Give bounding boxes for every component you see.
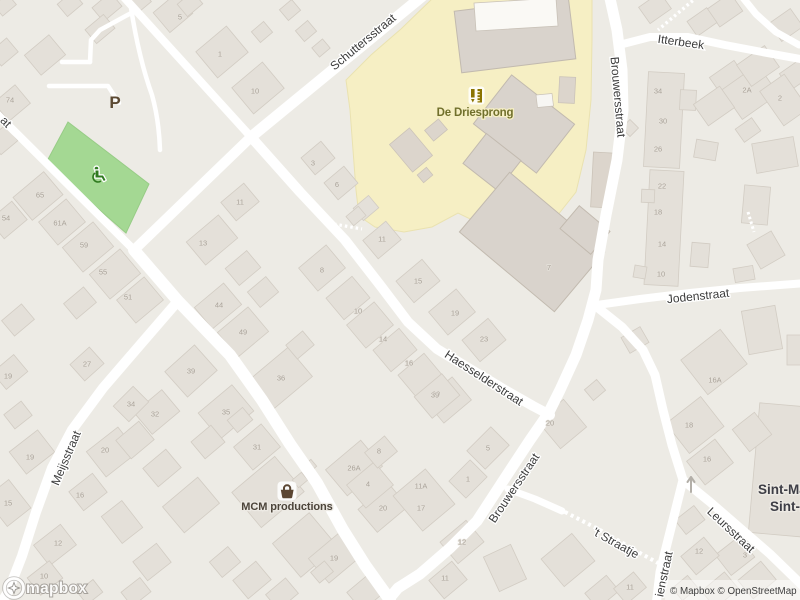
svg-text:MCM productions: MCM productions xyxy=(241,501,332,513)
svg-text:54: 54 xyxy=(2,214,10,223)
svg-text:3: 3 xyxy=(311,159,315,168)
svg-text:39: 39 xyxy=(187,367,195,376)
svg-text:10: 10 xyxy=(251,87,259,96)
svg-text:23: 23 xyxy=(480,335,488,344)
svg-text:16A: 16A xyxy=(708,376,721,385)
svg-text:39: 39 xyxy=(431,391,439,400)
svg-text:35: 35 xyxy=(222,408,230,417)
svg-text:12: 12 xyxy=(54,539,62,548)
svg-text:Sint-P: Sint-P xyxy=(770,499,800,514)
svg-text:7: 7 xyxy=(547,263,551,272)
svg-text:16: 16 xyxy=(405,359,413,368)
svg-text:8: 8 xyxy=(377,447,381,456)
svg-text:26: 26 xyxy=(654,145,662,154)
svg-text:32: 32 xyxy=(151,410,159,419)
svg-text:44: 44 xyxy=(215,301,223,310)
svg-text:14: 14 xyxy=(379,335,387,344)
svg-text:11: 11 xyxy=(378,235,386,244)
svg-text:12: 12 xyxy=(458,538,466,547)
svg-text:65: 65 xyxy=(36,191,44,200)
svg-text:De Driesprong: De Driesprong xyxy=(437,107,514,119)
svg-text:16: 16 xyxy=(703,455,711,464)
svg-text:19: 19 xyxy=(26,453,34,462)
svg-text:49: 49 xyxy=(239,328,247,337)
svg-text:51: 51 xyxy=(124,293,132,302)
svg-text:20: 20 xyxy=(379,504,387,513)
svg-text:26A: 26A xyxy=(347,464,360,473)
svg-text:30: 30 xyxy=(659,117,667,126)
svg-text:© Mapbox © OpenStreetMap: © Mapbox © OpenStreetMap xyxy=(670,586,797,597)
svg-text:13: 13 xyxy=(199,239,207,248)
svg-text:31: 31 xyxy=(253,443,261,452)
svg-text:Sint-Ma: Sint-Ma xyxy=(758,482,800,497)
svg-text:mapbox: mapbox xyxy=(26,580,87,597)
svg-text:34: 34 xyxy=(654,87,662,96)
svg-text:5: 5 xyxy=(178,13,182,22)
svg-text:5: 5 xyxy=(486,444,490,453)
svg-text:61A: 61A xyxy=(53,219,66,228)
svg-text:19: 19 xyxy=(4,372,12,381)
svg-text:10: 10 xyxy=(354,307,362,316)
svg-text:P: P xyxy=(109,93,120,112)
svg-text:15: 15 xyxy=(4,499,12,508)
svg-text:19: 19 xyxy=(330,554,338,563)
svg-text:22: 22 xyxy=(658,182,666,191)
svg-text:11: 11 xyxy=(441,574,449,583)
svg-text:20: 20 xyxy=(546,419,554,428)
svg-text:18: 18 xyxy=(654,208,662,217)
svg-text:19: 19 xyxy=(451,309,459,318)
svg-text:12: 12 xyxy=(695,547,703,556)
svg-text:10: 10 xyxy=(657,270,665,279)
svg-text:2: 2 xyxy=(778,94,782,103)
svg-text:74: 74 xyxy=(6,96,14,105)
svg-text:1: 1 xyxy=(466,475,470,484)
svg-text:2A: 2A xyxy=(742,86,751,95)
svg-text:11: 11 xyxy=(626,583,634,592)
svg-text:17: 17 xyxy=(417,504,425,513)
svg-text:15: 15 xyxy=(414,277,422,286)
svg-text:36: 36 xyxy=(277,374,285,383)
svg-text:16: 16 xyxy=(76,491,84,500)
svg-text:1: 1 xyxy=(218,50,222,59)
svg-text:6: 6 xyxy=(335,180,339,189)
svg-text:20: 20 xyxy=(101,446,109,455)
svg-text:34: 34 xyxy=(127,400,135,409)
svg-text:14: 14 xyxy=(658,240,666,249)
svg-text:8: 8 xyxy=(320,266,324,275)
svg-text:18: 18 xyxy=(685,421,693,430)
svg-text:11A: 11A xyxy=(415,482,428,491)
svg-text:59: 59 xyxy=(80,241,88,250)
svg-text:55: 55 xyxy=(99,268,107,277)
svg-text:11: 11 xyxy=(236,198,244,207)
svg-text:27: 27 xyxy=(83,360,91,369)
svg-text:4: 4 xyxy=(366,480,370,489)
